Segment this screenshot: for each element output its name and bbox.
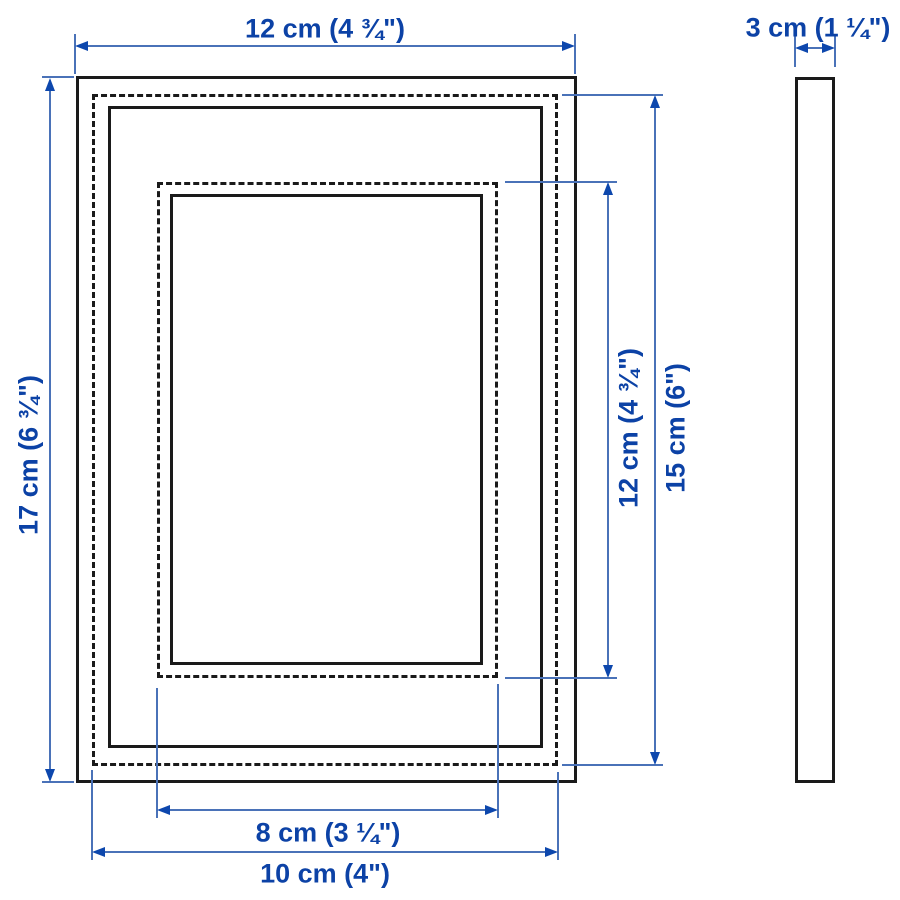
arrowhead-right-icon [545,847,558,857]
dim-picture-width: 10 cm (4") [0,0,900,900]
dimension-line [98,851,554,853]
arrowhead-left-icon [92,847,105,857]
dimension-label-picture-width: 10 cm (4") [260,861,390,888]
frame-dimension-diagram: 12 cm (4 ¾") 3 cm (1 ¼") 17 cm (6 ¾") 12… [0,0,900,900]
